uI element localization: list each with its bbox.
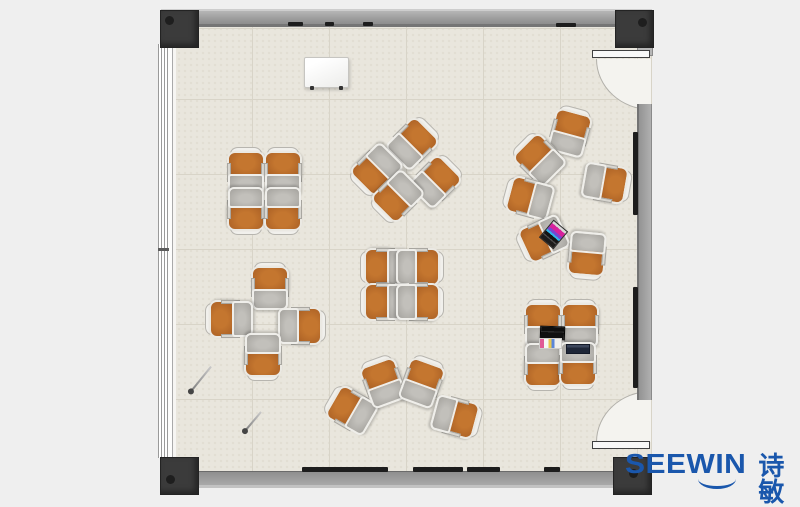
post-bolt bbox=[166, 475, 175, 484]
wall-bottom bbox=[176, 471, 652, 488]
brand-logo: SEEWIN 诗敏 bbox=[625, 451, 800, 505]
corner-post bbox=[160, 457, 199, 495]
floor-plan-canvas: SEEWIN 诗敏 bbox=[0, 0, 800, 507]
wall-top bbox=[161, 9, 652, 27]
corner-post bbox=[615, 10, 654, 48]
wall-right bbox=[637, 104, 652, 400]
window-curtain-wall bbox=[158, 44, 176, 458]
post-bolt bbox=[638, 18, 647, 27]
brand-logo-text-en: SEEWIN bbox=[625, 451, 746, 479]
post-bolt bbox=[165, 16, 174, 25]
room-floor bbox=[176, 26, 652, 472]
brand-logo-text-cn: 诗敏 bbox=[758, 453, 800, 505]
door-leaf bbox=[592, 50, 650, 58]
brand-logo-swoosh-icon bbox=[698, 478, 736, 489]
corner-post bbox=[160, 10, 199, 48]
window-mullion-joint bbox=[158, 248, 169, 251]
door-leaf bbox=[592, 441, 650, 449]
